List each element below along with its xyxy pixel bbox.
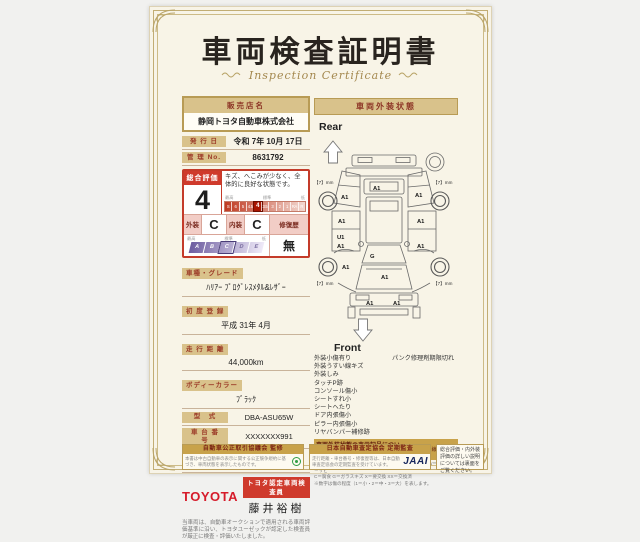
grade-cell: 4.5 <box>247 202 254 211</box>
overall-grade-value: 4 <box>184 185 221 216</box>
condition-item: ピラー内張傷小 <box>314 421 392 429</box>
control-number-row: 管 理 No. 8631792 <box>182 151 310 166</box>
condition-item: パンク修理剤期限切れ <box>392 355 458 363</box>
condition-item: ドア内張傷小 <box>314 412 392 420</box>
damage-mark: A1 <box>366 301 374 307</box>
condition-item: 外装小傷有り <box>314 355 392 363</box>
jaai-audit-text: 走行距離・車台番号・修復歴等は、日本自動車査定協会の定期監査を受けています。 <box>312 456 401 467</box>
car-exterior-diagram: Rear Front 【7】mm 【7】mm 【7】mm 【7】mm A1 A1… <box>314 117 458 353</box>
grade-cell: 1 <box>284 202 291 211</box>
detail-row-body-color: ボディーカラー ﾌﾞﾗｯｸ <box>182 374 310 409</box>
inspector-right: トヨタ認定車両検査員 藤井裕樹 <box>243 477 310 516</box>
tire-depth-front-right: 【7】mm <box>433 281 453 286</box>
grade-cell: RA <box>291 202 298 211</box>
tire-depth-front-left: 【7】mm <box>314 281 334 286</box>
vehicle-details: 車種・グレード ﾊﾘｱｰ ﾌﾟﾛｸﾞﾚｽﾒﾀﾙ&ﾚｻﾞｰ 初 度 登 録 平成 … <box>182 262 310 473</box>
grade-cell: 2 <box>277 202 284 211</box>
issue-date-label: 発 行 日 <box>182 136 226 147</box>
inspection-note: 当車両は、自動車オークションで適用される車両評価基準に沿い、トヨタユーゼックが認… <box>182 520 310 542</box>
vehicle-info-panel: 販売店名 静岡トヨタ自動車株式会社 発 行 日 令和 7年 10月 17日 管 … <box>182 96 310 542</box>
tire-depth-rear-left: 【7】mm <box>314 180 334 185</box>
footer-strip: 自動車公正取引協議会 監修 本書は中古自動車の表示に関する公正競争規約に基づき、… <box>182 444 484 470</box>
jaai-audit-box: 日本自動車査定協会 定期監査 走行距離・車台番号・修復歴等は、日本自動車査定協会… <box>309 444 431 470</box>
condition-item: コンソール傷小 <box>314 388 392 396</box>
interior-label: 内装 <box>227 215 245 234</box>
page-subtitle: Inspection Certificate <box>150 69 491 82</box>
front-arrow-icon <box>354 319 372 341</box>
detail-label: 走 行 距 離 <box>182 344 228 355</box>
detail-value: 平成 31年 4月 <box>182 318 310 334</box>
dealer-name: 静岡トヨタ自動車株式会社 <box>184 113 308 130</box>
rear-label: Rear <box>319 121 342 133</box>
detail-label: 初 度 登 録 <box>182 306 228 317</box>
jaai-audit-title: 日本自動車査定協会 定期監査 <box>310 445 430 454</box>
exterior-grade: C <box>202 215 227 234</box>
legend-line: ※数字は傷の程度（1＝小・2＝中・3＝大）を表します。 <box>314 481 458 488</box>
letter-cell: E <box>248 242 265 253</box>
certificate: 車両検査証明書 Inspection Certificate 販売店名 静岡トヨ… <box>149 6 492 474</box>
grade-cell: 5 <box>240 202 247 211</box>
detail-label: 車種・グレード <box>182 268 243 279</box>
damage-mark: G <box>370 254 375 260</box>
evaluation-comment-cell: キズ、へこみが少なく、全体的に良好な状態です。 最高 標準 低 S 6 5 4.… <box>222 171 308 214</box>
evaluation-comment: キズ、へこみが少なく、全体的に良好な状態です。 <box>222 171 308 195</box>
fair-trade-council-title: 自動車公正取引協議会 監修 <box>183 445 303 454</box>
damage-mark: A1 <box>337 244 345 250</box>
grade-cell: S <box>225 202 232 211</box>
page-title: 車両検査証明書 <box>150 27 491 71</box>
damage-mark: A1 <box>338 219 346 225</box>
grade-scale: S 6 5 4.5 4 3.5 3 2 1 RA R <box>224 201 306 212</box>
fair-trade-council-box: 自動車公正取引協議会 監修 本書は中古自動車の表示に関する公正競争規約に基づき、… <box>182 444 304 470</box>
screenshot-canvas: 車両検査証明書 Inspection Certificate 販売店名 静岡トヨ… <box>0 0 640 480</box>
damage-mark: A1 <box>417 244 425 250</box>
damage-mark: A1 <box>342 265 350 271</box>
fair-trade-council-body: 本書は中古自動車の表示に関する公正競争規約に基づき、車両状態を表示したものです。 <box>183 454 303 469</box>
damage-mark: U1 <box>337 235 345 241</box>
inspector-name: 藤井裕樹 <box>243 500 310 516</box>
jaai-audit-body: 走行距離・車台番号・修復歴等は、日本自動車査定協会の定期監査を受けています。 J… <box>310 454 430 469</box>
overall-evaluation-row: 総合評価 4 キズ、へこみが少なく、全体的に良好な状態です。 最高 標準 低 S… <box>184 171 308 215</box>
detail-label: ボディーカラー <box>182 380 242 391</box>
detail-value: XXXXXXX991 <box>228 432 310 441</box>
detail-row-model-grade: 車種・グレード ﾊﾘｱｰ ﾌﾟﾛｸﾞﾚｽﾒﾀﾙ&ﾚｻﾞｰ <box>182 262 310 297</box>
damage-mark: A1 <box>373 186 381 192</box>
detail-value: 44,000km <box>182 356 310 370</box>
grade-cell: R <box>299 202 305 211</box>
condition-notes-left: 外装小傷有り 外装うすい線キズ 外装しみ タッチP跡 コンソール傷小 シートすれ… <box>314 355 392 437</box>
condition-item: シートすれ小 <box>314 396 392 404</box>
grade-cell: 3 <box>269 202 276 211</box>
detail-row-model-code: 型 式 DBA-ASU65W <box>182 412 310 426</box>
grade-cell: 3.5 <box>262 202 269 211</box>
damage-mark: A1 <box>393 301 401 307</box>
condition-item: 外装しみ <box>314 371 392 379</box>
subtitle-text: Inspection Certificate <box>249 69 392 82</box>
letter-scale-cell: 最高 標準 低 A B C D E <box>184 235 270 256</box>
detail-label: 型 式 <box>182 412 228 423</box>
jaai-logo: JAAI <box>403 456 428 467</box>
front-label: Front <box>334 342 361 353</box>
toyota-logo: TOYOTA <box>182 489 238 504</box>
see-reverse-text: 総合評価・内外装評価の詳しい説明については裏面をご覧ください。 <box>437 445 483 477</box>
damage-mark: A1 <box>415 193 423 199</box>
evaluation-box: 総合評価 4 キズ、へこみが少なく、全体的に良好な状態です。 最高 標準 低 S… <box>182 169 310 258</box>
detail-value: DBA-ASU65W <box>228 413 310 422</box>
control-number-label: 管 理 No. <box>182 152 226 163</box>
grade-cell-selected: 4 <box>254 202 261 211</box>
grade-cell: 6 <box>232 202 239 211</box>
issue-date-value: 令和 7年 10月 17日 <box>226 136 310 147</box>
damage-mark: A1 <box>381 275 389 281</box>
letter-scale: A B C D E <box>189 242 265 253</box>
detail-row-mileage: 走 行 距 離 44,000km <box>182 338 310 371</box>
condition-item: リヤバンパー補修跡 <box>314 429 392 437</box>
letter-scale-labels: 最高 標準 低 <box>184 236 269 242</box>
fair-trade-council-text: 本書は中古自動車の表示に関する公正競争規約に基づき、車両状態を表示したものです。 <box>185 456 290 467</box>
detail-row-first-registration: 初 度 登 録 平成 31年 4月 <box>182 300 310 335</box>
squiggle-ornament-icon <box>398 69 420 82</box>
scale-label-high: 最高 <box>187 236 195 242</box>
green-seal-icon <box>292 457 301 466</box>
condition-item: タッチP跡 <box>314 380 392 388</box>
repair-history-value: 無 <box>270 235 308 256</box>
detail-value: ﾌﾞﾗｯｸ <box>182 392 310 408</box>
overall-evaluation-label: 総合評価 <box>184 171 221 185</box>
corner-flourish-icon <box>151 446 177 472</box>
exterior-condition-panel: 車両外装状態 <box>314 98 458 488</box>
damage-mark: A1 <box>341 195 349 201</box>
exterior-interior-row: 外装 C 内装 C 修復歴 <box>184 215 308 235</box>
tire-depth-rear-right: 【7】mm <box>433 180 453 185</box>
repair-history-label: 修復歴 <box>270 215 308 234</box>
scale-label-mid: 標準 <box>224 236 232 242</box>
scale-label-low: 低 <box>262 236 266 242</box>
letter-scale-row: 最高 標準 低 A B C D E 無 <box>184 235 308 256</box>
exterior-condition-header: 車両外装状態 <box>314 98 458 115</box>
see-reverse-box: 総合評価・内外装評価の詳しい説明については裏面をご覧ください。 <box>436 444 484 470</box>
damage-mark: A1 <box>417 219 425 225</box>
overall-grade-cell: 総合評価 4 <box>184 171 222 214</box>
control-number-value: 8631792 <box>226 153 310 162</box>
inspector-block: TOYOTA トヨタ認定車両検査員 藤井裕樹 <box>182 477 310 516</box>
detail-value: ﾊﾘｱｰ ﾌﾟﾛｸﾞﾚｽﾒﾀﾙ&ﾚｻﾞｰ <box>182 280 310 296</box>
rear-arrow-icon <box>324 141 342 163</box>
condition-notes: 外装小傷有り 外装うすい線キズ 外装しみ タッチP跡 コンソール傷小 シートすれ… <box>314 355 458 437</box>
squiggle-ornament-icon <box>221 69 243 82</box>
dealer-label: 販売店名 <box>184 98 308 113</box>
interior-grade: C <box>245 215 270 234</box>
condition-notes-right: パンク修理剤期限切れ <box>392 355 458 437</box>
exterior-label: 外装 <box>184 215 202 234</box>
dealer-box: 販売店名 静岡トヨタ自動車株式会社 <box>182 96 310 132</box>
issue-date-row: 発 行 日 令和 7年 10月 17日 <box>182 135 310 150</box>
